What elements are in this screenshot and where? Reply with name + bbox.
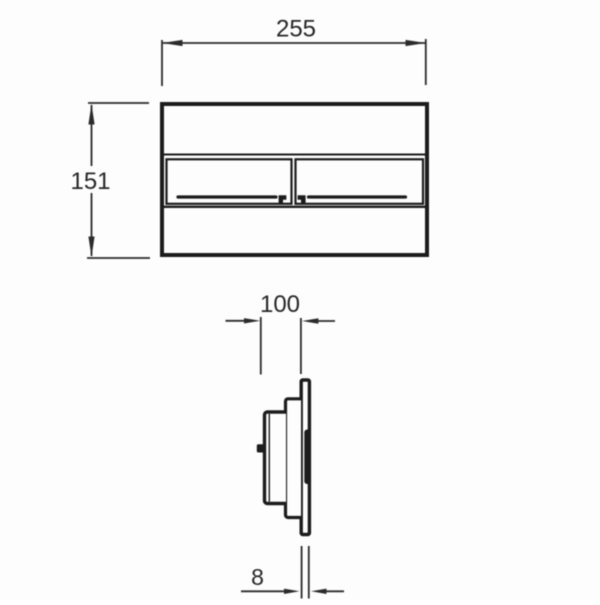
svg-text:100: 100: [260, 291, 300, 318]
svg-text:255: 255: [276, 16, 316, 43]
svg-text:151: 151: [70, 168, 110, 195]
svg-text:8: 8: [251, 564, 264, 590]
